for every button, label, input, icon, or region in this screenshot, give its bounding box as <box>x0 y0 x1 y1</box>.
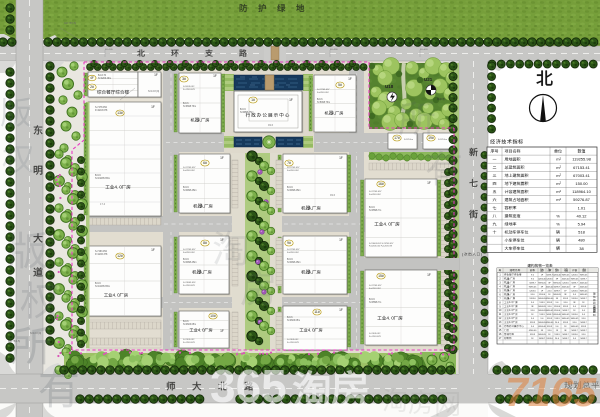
svg-text:5098.7: 5098.7 <box>580 278 587 280</box>
svg-text:B-9.6: B-9.6 <box>183 103 189 105</box>
svg-text:4206.40: 4206.40 <box>546 298 554 300</box>
svg-text:S-74703.457: S-74703.457 <box>287 167 300 169</box>
svg-text:480: 480 <box>578 238 585 243</box>
svg-text:S-7403.052: S-7403.052 <box>287 339 299 341</box>
svg-text:S=4606.05m: S=4606.05m <box>183 324 196 326</box>
svg-text:67153.41: 67153.41 <box>573 165 590 170</box>
svg-text:.: . <box>115 293 116 298</box>
svg-text:注: 注 <box>584 268 587 272</box>
svg-text:518.3: 518.3 <box>539 314 545 316</box>
svg-text:.: . <box>200 328 201 333</box>
svg-text:1203.6: 1203.6 <box>529 298 536 300</box>
svg-text:11#: 11# <box>314 310 320 314</box>
svg-text:S=13.8 (9): S=13.8 (9) <box>148 90 159 93</box>
svg-text:数值: 数值 <box>578 148 586 154</box>
svg-text:518.3: 518.3 <box>563 306 569 308</box>
svg-text:5098.7: 5098.7 <box>571 330 578 332</box>
svg-text:B-9.6: B-9.6 <box>287 317 293 319</box>
svg-text:1F: 1F <box>339 308 343 312</box>
svg-text:7#: 7# <box>287 161 291 165</box>
svg-text:4206.40: 4206.40 <box>529 330 537 332</box>
svg-text:S-74703.457: S-74703.457 <box>317 89 330 91</box>
svg-text:S-376.4m: S-376.4m <box>438 139 447 141</box>
svg-text:U18: U18 <box>385 84 394 89</box>
svg-text:S-7463.052: S-7463.052 <box>95 251 108 253</box>
svg-text:5098.7: 5098.7 <box>580 322 587 324</box>
svg-text:.: . <box>117 186 118 191</box>
svg-text:4206.40: 4206.40 <box>538 326 546 328</box>
svg-text:1203.6: 1203.6 <box>529 290 536 292</box>
svg-text:518.3: 518.3 <box>530 322 536 324</box>
svg-text:9096.05: 9096.05 <box>529 286 537 288</box>
svg-text:F=1203.678: F=1203.678 <box>369 336 382 338</box>
svg-text:9096.05: 9096.05 <box>538 334 546 336</box>
svg-text:9096.05: 9096.05 <box>571 318 579 320</box>
svg-text:93.6: 93.6 <box>268 123 274 127</box>
svg-text:1F: 1F <box>289 98 293 102</box>
svg-text:S-376.4m: S-376.4m <box>404 139 413 141</box>
svg-text:S-7478.052: S-7478.052 <box>95 107 108 109</box>
svg-text:1F: 1F <box>339 156 343 160</box>
svg-text:9096.05: 9096.05 <box>562 274 570 276</box>
svg-text:S-74703.457: S-74703.457 <box>287 249 300 251</box>
svg-text:9#: 9# <box>287 241 291 245</box>
svg-text:1203.6: 1203.6 <box>546 338 553 340</box>
svg-text:S=9896.75m: S=9896.75m <box>240 111 254 114</box>
svg-text:S=4606.05m: S=4606.05m <box>287 320 300 322</box>
svg-text:16#: 16# <box>378 182 384 186</box>
svg-text:U21: U21 <box>424 77 433 82</box>
svg-text:67003.41: 67003.41 <box>573 173 590 178</box>
svg-text:5098.7: 5098.7 <box>554 286 561 288</box>
svg-text:518.3: 518.3 <box>547 302 553 304</box>
svg-text:F=1203.678: F=1203.678 <box>183 285 196 287</box>
svg-text:4206.40: 4206.40 <box>562 286 570 288</box>
svg-text:9096.05: 9096.05 <box>538 282 546 284</box>
svg-text:S-74603.052: S-74603.052 <box>183 282 196 284</box>
svg-text:5098.7: 5098.7 <box>571 282 578 284</box>
svg-text:F=1203.678: F=1203.678 <box>183 342 196 344</box>
svg-text:38: 38 <box>579 246 584 251</box>
svg-text:7165: 7165 <box>505 369 597 415</box>
svg-text:F=6203.052: F=6203.052 <box>183 252 196 254</box>
svg-text:4206.40: 4206.40 <box>553 274 561 276</box>
svg-text:1203.6: 1203.6 <box>554 310 561 312</box>
svg-text:1F: 1F <box>348 77 352 81</box>
svg-text:.: . <box>310 328 311 333</box>
svg-text:518.3: 518.3 <box>554 334 560 336</box>
svg-text:9096.05: 9096.05 <box>553 282 561 284</box>
svg-text:K0+105: K0+105 <box>105 49 113 51</box>
svg-text:5.94: 5.94 <box>578 221 587 226</box>
svg-text:1F: 1F <box>151 248 155 252</box>
svg-text:9096.05: 9096.05 <box>562 314 570 316</box>
svg-text:F=1206.378: F=1206.378 <box>95 254 108 256</box>
svg-text:S=19235.65m: S=19235.65m <box>95 177 110 180</box>
svg-text:F=6203.052: F=6203.052 <box>317 92 330 94</box>
svg-text:4F: 4F <box>90 76 94 80</box>
svg-text:.: . <box>389 317 390 322</box>
svg-text:59276.87: 59276.87 <box>573 197 590 202</box>
svg-text:S=9096.05m: S=9096.05m <box>287 189 301 192</box>
svg-text:S-74703.457: S-74703.457 <box>183 167 196 169</box>
svg-text:5098.7: 5098.7 <box>539 338 546 340</box>
svg-text:9096.05: 9096.05 <box>562 318 570 320</box>
svg-text:5098.7: 5098.7 <box>562 334 569 336</box>
svg-text:8#: 8# <box>203 241 207 245</box>
svg-text:5098.7: 5098.7 <box>554 290 561 292</box>
svg-text:%: % <box>556 213 560 218</box>
svg-text:S-5203.052: S-5203.052 <box>183 86 195 88</box>
svg-text:S-7403.052: S-7403.052 <box>369 333 381 335</box>
svg-text:518.3: 518.3 <box>530 334 536 336</box>
svg-text:B-9.6: B-9.6 <box>317 99 323 101</box>
svg-text:1203.6: 1203.6 <box>539 294 546 296</box>
svg-text:17.4: 17.4 <box>100 202 106 206</box>
svg-text:518: 518 <box>578 230 585 235</box>
svg-text:4206.40: 4206.40 <box>580 286 588 288</box>
svg-text:5098.7: 5098.7 <box>562 310 569 312</box>
svg-text:高: 高 <box>548 268 551 272</box>
svg-text:9096.05: 9096.05 <box>571 278 579 280</box>
svg-text:S=9096.05m: S=9096.05m <box>287 261 301 264</box>
svg-text:518.3: 518.3 <box>547 318 553 320</box>
svg-text:93.6: 93.6 <box>330 193 336 197</box>
svg-text:4206.40: 4206.40 <box>553 314 561 316</box>
svg-text:13#: 13# <box>117 111 123 115</box>
svg-text:F=1203.678: F=1203.678 <box>287 342 300 344</box>
svg-text:1F: 1F <box>427 273 431 277</box>
svg-text:S-74703.457: S-74703.457 <box>183 249 196 251</box>
svg-text:F=6203.052: F=6203.052 <box>369 194 382 196</box>
svg-text:1203.6: 1203.6 <box>562 282 569 284</box>
svg-text:1#: 1# <box>251 98 255 102</box>
svg-text:118964.10: 118964.10 <box>572 189 591 194</box>
svg-text:F=4203.678: F=4203.678 <box>95 110 108 112</box>
svg-text:5#: 5# <box>338 83 342 87</box>
svg-text:S-7403.052: S-7403.052 <box>183 339 195 341</box>
svg-text:S=9096.05m: S=9096.05m <box>183 189 197 192</box>
svg-text:1203.6: 1203.6 <box>546 278 553 280</box>
svg-text:F=6203.052: F=6203.052 <box>287 252 300 254</box>
svg-text:2#: 2# <box>90 85 94 89</box>
svg-text:9096.05: 9096.05 <box>580 294 588 296</box>
svg-text:4206.40: 4206.40 <box>580 282 588 284</box>
svg-text:4206.40: 4206.40 <box>562 278 570 280</box>
svg-text:518.3: 518.3 <box>581 326 587 328</box>
svg-text:B-16.70: B-16.70 <box>98 75 107 77</box>
svg-text:518.3: 518.3 <box>554 318 560 320</box>
svg-text:F=6203.052: F=6203.052 <box>183 170 196 172</box>
svg-text:1203.6: 1203.6 <box>571 314 578 316</box>
svg-text:5098.7: 5098.7 <box>580 338 587 340</box>
svg-text:9096.05: 9096.05 <box>580 290 588 292</box>
svg-text:S=13.8 (9): S=13.8 (9) <box>30 332 41 335</box>
svg-text:518.3: 518.3 <box>539 302 545 304</box>
svg-text:1203.6: 1203.6 <box>571 274 578 276</box>
svg-text:S=9096.05m: S=9096.05m <box>183 261 197 264</box>
svg-text:5098.7: 5098.7 <box>529 282 536 284</box>
svg-text:0: 0 <box>388 222 391 228</box>
svg-text:9096.05: 9096.05 <box>580 274 588 276</box>
svg-text:1F: 1F <box>220 156 224 160</box>
svg-text:1.01: 1.01 <box>578 205 587 210</box>
svg-text:5098.7: 5098.7 <box>580 298 587 300</box>
svg-text:%: % <box>556 221 560 226</box>
svg-text:17#: 17# <box>394 136 400 140</box>
svg-text:.: . <box>386 223 387 228</box>
svg-text:40.12: 40.12 <box>576 213 587 218</box>
svg-text:6x0.75(4.5): 6x0.75(4.5) <box>8 340 20 343</box>
svg-text:518.3: 518.3 <box>563 322 569 324</box>
svg-text:4206.40: 4206.40 <box>546 322 554 324</box>
svg-text:S-74703.457: S-74703.457 <box>369 285 382 287</box>
svg-text:S=9598.7m: S=9598.7m <box>369 301 381 304</box>
svg-text:底: 底 <box>566 268 569 272</box>
svg-text:10#: 10# <box>210 314 216 318</box>
svg-text:19#: 19# <box>428 136 434 140</box>
svg-text:0: 0 <box>119 185 122 191</box>
svg-text:S=9598.7m: S=9598.7m <box>369 209 381 212</box>
svg-text:1203.6: 1203.6 <box>571 298 578 300</box>
svg-text:9096.05: 9096.05 <box>571 326 579 328</box>
svg-text:网: 网 <box>434 388 461 417</box>
svg-text:S=4206.40m: S=4206.40m <box>98 78 111 80</box>
svg-text:1F: 1F <box>151 105 155 109</box>
svg-text:F=6203.052 F=1203.678: F=6203.052 F=1203.678 <box>369 246 393 248</box>
svg-text:K0+420: K0+420 <box>420 49 428 51</box>
svg-text:1F: 1F <box>154 73 158 77</box>
svg-text:12#: 12# <box>117 254 123 258</box>
svg-text:1203.6: 1203.6 <box>554 306 561 308</box>
svg-text:S=3698.73m: S=3698.73m <box>183 106 196 108</box>
svg-text:结: 结 <box>555 268 558 272</box>
svg-text:518.3: 518.3 <box>547 326 553 328</box>
svg-text:S-74703.457: S-74703.457 <box>369 191 382 193</box>
svg-text:6#: 6# <box>203 161 207 165</box>
svg-text:518.3: 518.3 <box>581 306 587 308</box>
svg-text:1F: 1F <box>339 238 343 242</box>
svg-text:S=10235.65m: S=10235.65m <box>95 285 110 288</box>
svg-text:B-9.6: B-9.6 <box>183 321 189 323</box>
svg-text:365: 365 <box>210 360 287 412</box>
svg-text:0: 0 <box>391 316 394 322</box>
svg-text:3x0.75(3.5): 3x0.75(3.5) <box>64 22 76 25</box>
svg-text:119255.98: 119255.98 <box>572 157 591 162</box>
svg-text:F=6203.052: F=6203.052 <box>369 288 382 290</box>
svg-text:1203.6: 1203.6 <box>571 334 578 336</box>
svg-text:5098.7: 5098.7 <box>562 338 569 340</box>
svg-text:3#: 3# <box>182 77 186 81</box>
svg-text:K0+330: K0+330 <box>330 49 338 51</box>
svg-text:F=6203.052: F=6203.052 <box>287 170 300 172</box>
svg-text:15#: 15# <box>378 274 384 278</box>
svg-text:9096.05: 9096.05 <box>538 306 546 308</box>
svg-text:1F: 1F <box>427 181 431 185</box>
svg-text:F=1203.678: F=1203.678 <box>183 89 196 91</box>
svg-text:150.00: 150.00 <box>575 181 588 186</box>
svg-text:1203.6: 1203.6 <box>571 290 578 292</box>
svg-text:518.3: 518.3 <box>563 298 569 300</box>
svg-text:1F: 1F <box>213 74 217 78</box>
svg-text:1F: 1F <box>220 329 224 333</box>
svg-text:5098.7: 5098.7 <box>580 330 587 332</box>
svg-text:9096.05: 9096.05 <box>553 294 561 296</box>
svg-text:S=5098.73m: S=5098.73m <box>317 102 330 104</box>
